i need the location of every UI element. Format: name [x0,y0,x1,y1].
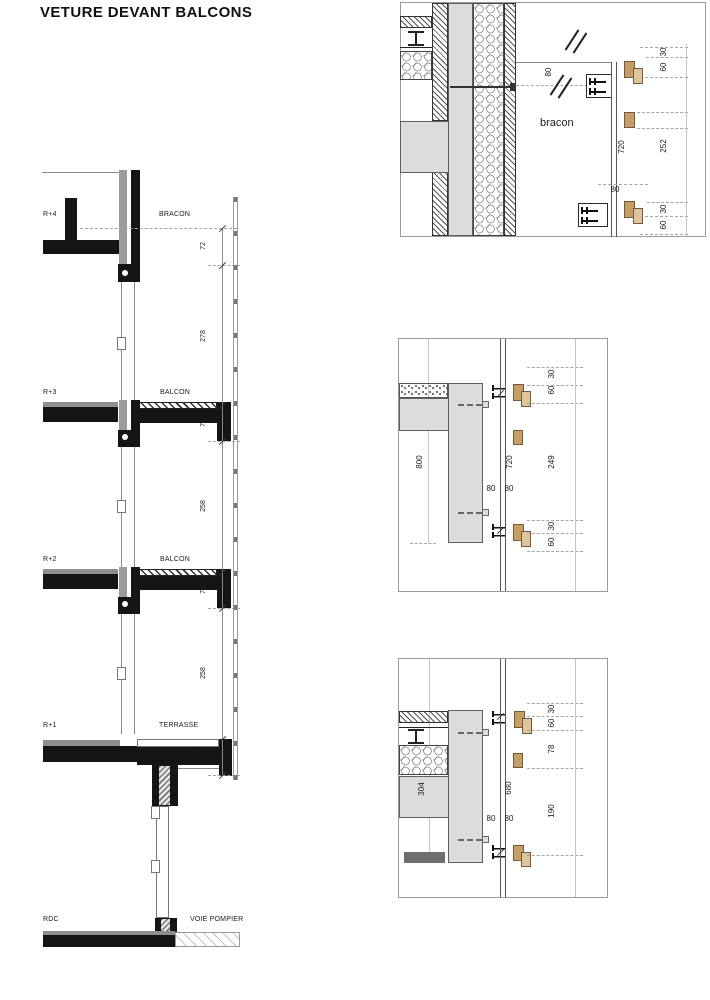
ceiling-line-r4 [42,172,120,173]
slab-r4 [43,240,120,254]
ceiling-insulation [400,51,432,80]
glazing-fitting-d1 [151,806,160,819]
anchor-dashed [458,732,482,734]
wall-hatch-lower [432,171,448,236]
dim-72-r2: 72 [199,570,209,610]
anchor-head [482,836,489,843]
fixing-block-light [522,718,532,734]
render-hatch-layer [504,3,516,236]
dim-rail-680: 680 [504,768,514,808]
bolt-symbol [589,87,609,95]
concrete-wall-return [400,121,449,173]
extension-line [686,44,687,236]
dim-60-bottom: 60 [547,522,557,562]
concrete-wall-layer [448,3,473,236]
dim-60-bottom: 60 [659,205,669,245]
bracon-top-chord-line [516,62,612,63]
zone-label-terrasse: TERRASSE [159,722,198,729]
frame-fixing-circle-r4 [122,270,128,276]
anchor-head [482,729,489,736]
fixing-block-light [633,208,643,224]
dim-72-r3: 72 [199,403,209,443]
dim-278: 278 [199,316,209,356]
level-label-r1: R+1 [43,722,57,729]
fixing-block-dark [513,753,523,768]
terrace-deck [137,739,219,747]
dim-78: 78 [547,729,557,769]
ceiling-line [399,727,448,728]
fixing-block-light [521,391,531,407]
frame-fixing-circle-r3 [122,434,128,440]
bolt-symbol [581,216,601,224]
anchor-head [482,509,489,516]
terrace-slab [137,747,219,765]
zone-label-balcon-r3: BALCON [160,389,190,396]
level-label-r2: R+2 [43,556,57,563]
dim-252: 252 [659,126,669,166]
bracon-level-dashline [80,228,237,229]
glazing-fitting-d2 [151,860,160,873]
dim-gap-80-right: 80 [498,484,520,493]
zone-label-voie-pompier: VOIE POMPIER [190,916,243,923]
dim-rail-720: 720 [617,127,627,167]
glazing-fitting-a [117,337,126,350]
insulation-honeycomb-layer [473,3,504,236]
drawing-canvas: VETURE DEVANT BALCONS [0,0,710,1000]
concrete-slab-arm [399,398,449,431]
dim-258-b: 258 [199,653,209,693]
bolt-symbol [581,206,601,214]
column-insulation-hatch [159,766,170,805]
dim-gap-80-right: 80 [498,814,520,823]
dim-249: 249 [547,442,557,482]
dark-sill-bar [404,852,445,863]
dimension-leader [637,112,688,113]
concrete-upstand [448,383,483,543]
dim-height-800: 800 [415,442,425,482]
anchor-bolt-head [510,83,515,91]
glazing-fitting-b [117,500,126,513]
anchor-bolt [450,86,514,88]
window-frame-box-r2 [118,597,140,614]
dim-8-terrasse: 8 [196,731,206,771]
zone-label-bracon: BRACON [159,211,190,218]
dim-height-304: 304 [417,769,427,809]
level-label-r3: R+3 [43,389,57,396]
dim-258-a: 258 [199,486,209,526]
dim-offset-top: 80 [544,52,554,92]
floor-slab-hatch [400,16,432,28]
window-frame-box-r3 [118,430,140,447]
slab-r3 [43,407,118,422]
bracon-label: bracon [540,117,574,129]
slab-r2 [43,574,118,589]
extension-line-800 [428,339,429,543]
dimension-line [222,228,223,775]
dim-72-bracon: 72 [199,226,209,266]
dim-190: 190 [547,791,557,831]
zone-label-balcon-r2: BALCON [160,556,190,563]
bolt-symbol [589,77,609,85]
glazing-line-c2 [134,614,135,734]
extension-line [575,659,576,897]
anchor-dashed [458,404,482,406]
fixing-block-dark [624,112,635,128]
dim-60-top: 60 [547,370,557,410]
fixing-block-light [633,68,643,84]
screed-stipple-slab [399,383,448,398]
ceiling-line [400,47,432,48]
veture-rail-with-fixings [233,197,238,780]
frame-fixing-circle-r2 [122,601,128,607]
dim-60-top: 60 [659,47,669,87]
dim-dash-800 [410,543,436,544]
wall-hatch-upper [432,3,448,121]
anchor-dashed [458,512,482,514]
level-label-rdc: RDC [43,916,59,923]
page-title: VETURE DEVANT BALCONS [40,4,252,21]
anchor-head [482,401,489,408]
glazing-line-a2 [134,282,135,402]
dim-offset-bottom: 80 [604,185,626,194]
anchor-dashed [458,839,482,841]
fire-lane-hatch [175,932,240,947]
steel-ibeam-profile [408,729,424,744]
steel-ibeam-profile [408,31,424,46]
ground-slab [43,935,175,947]
glazing-line-b2 [134,447,135,567]
wall-stub-r4 [65,198,77,241]
floor-slab-hatch [399,711,448,723]
level-label-r4: R+4 [43,211,57,218]
glazing-fitting-c [117,667,126,680]
terrace-edge [219,739,232,776]
slab-r1 [43,746,137,762]
dim-rail-720: 720 [505,442,515,482]
extension-line [575,339,576,591]
